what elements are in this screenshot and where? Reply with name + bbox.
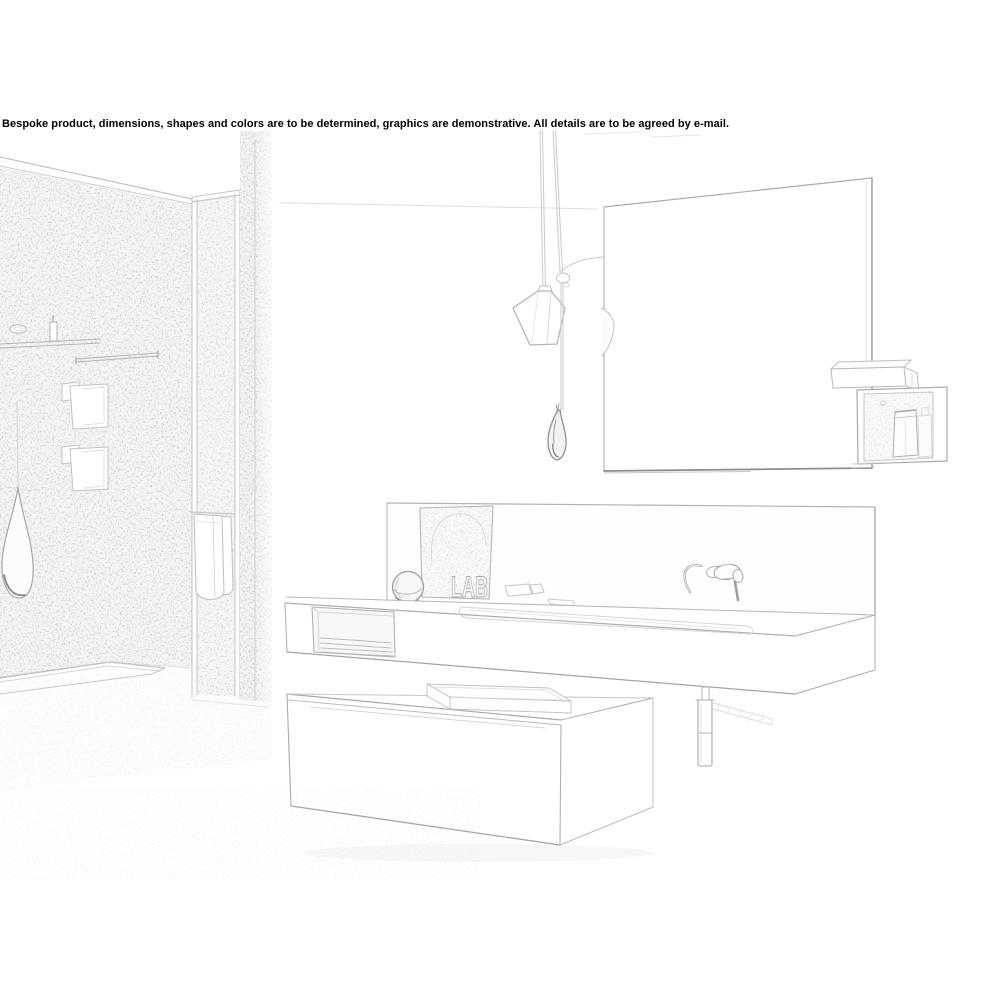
product-sketch-image: Bespoke product, dimensions, shapes and …: [0, 0, 1000, 1000]
decor-sphere: [393, 572, 424, 603]
book-label-text: LAB: [451, 571, 488, 604]
faceted-shade: [513, 291, 565, 345]
glass-partition-frame: [192, 190, 240, 698]
bottle: [918, 415, 932, 457]
pendant-vessel: [548, 410, 566, 460]
counter-open-niche: [312, 607, 395, 657]
wall-mirror: [604, 178, 872, 473]
bathroom-sketch: LAB: [0, 0, 1000, 1000]
hanging-towel: [191, 512, 235, 600]
drain-pipe: [696, 687, 772, 766]
towel-bar: [713, 703, 772, 725]
artwork-board: LAB: [420, 506, 493, 604]
